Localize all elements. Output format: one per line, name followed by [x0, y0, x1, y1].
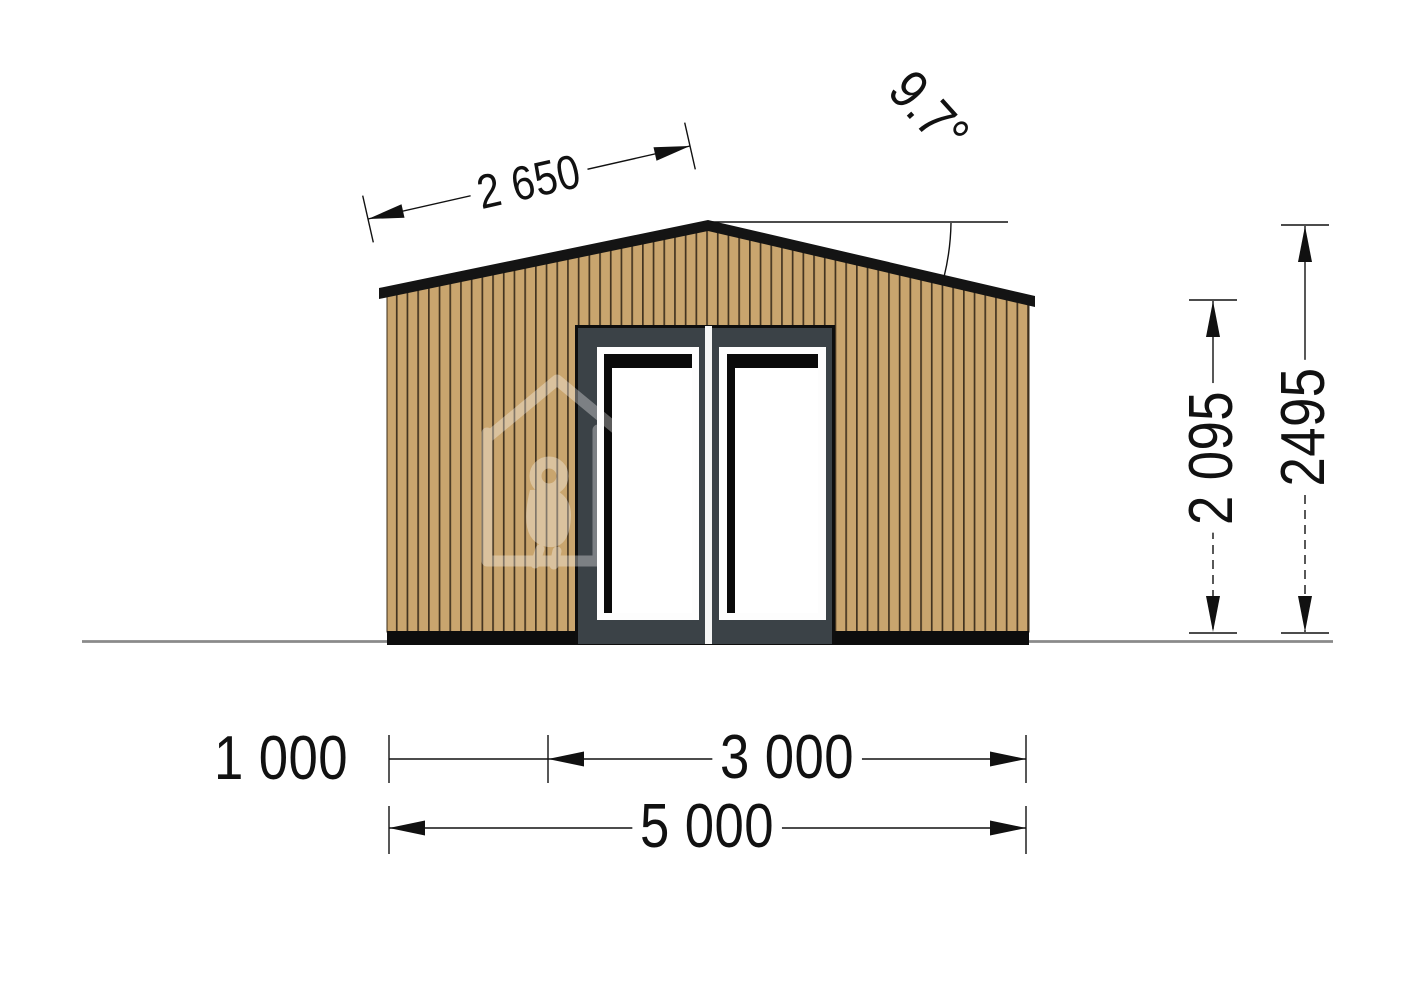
- angle-arc: [944, 223, 951, 277]
- door-divider: [705, 326, 712, 644]
- label-wall-height: 2 095: [1180, 383, 1244, 532]
- right-door-leaf: [719, 347, 826, 620]
- label-ridge-height: 2495: [1272, 360, 1336, 494]
- label-total-width: 5 000: [632, 795, 781, 859]
- dim-row-segments: [389, 735, 1026, 783]
- label-left-segment-width: 1 000: [214, 727, 348, 791]
- logo-bird-body-icon: [526, 489, 571, 547]
- right-door-glass: [735, 368, 818, 613]
- left-door-glass: [612, 368, 692, 613]
- label-middle-segment-width: 3 000: [712, 726, 861, 790]
- left-door-leaf: [597, 347, 699, 620]
- elevation-drawing-canvas: 2 650 9.7° 2 095 2495 1 000 3 000 5 000: [0, 0, 1415, 1000]
- door-unit: [575, 325, 835, 645]
